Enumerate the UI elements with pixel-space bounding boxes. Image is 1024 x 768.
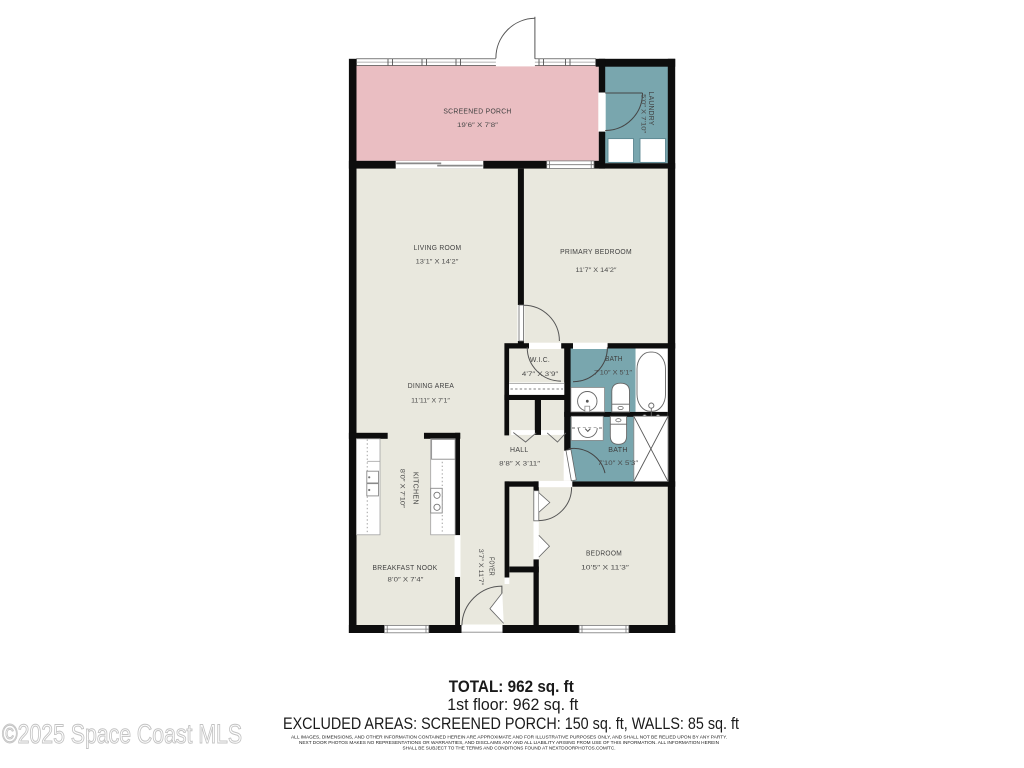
svg-text:4’7″ X 3’9″: 4’7″ X 3’9″ bbox=[522, 371, 559, 378]
svg-text:KITCHEN: KITCHEN bbox=[412, 472, 419, 505]
svg-text:TOTAL: 962 sq. ft: TOTAL: 962 sq. ft bbox=[449, 678, 574, 696]
svg-text:SHALL BE SUBJECT TO THE TERMS: SHALL BE SUBJECT TO THE TERMS AND CONDIT… bbox=[403, 746, 616, 751]
svg-text:7’10″ X 5’3″: 7’10″ X 5’3″ bbox=[598, 460, 639, 467]
svg-text:PRIMARY BEDROOM: PRIMARY BEDROOM bbox=[560, 249, 632, 256]
svg-text:LAUNDRY: LAUNDRY bbox=[647, 92, 654, 126]
svg-text:10’5″ X 11’3″: 10’5″ X 11’3″ bbox=[581, 564, 630, 571]
svg-text:EXCLUDED AREAS: SCREENED PORCH: EXCLUDED AREAS: SCREENED PORCH: 150 sq. … bbox=[283, 715, 739, 733]
svg-text:BATH: BATH bbox=[605, 356, 623, 363]
svg-text:3’7″ X 11’7″: 3’7″ X 11’7″ bbox=[477, 549, 484, 586]
svg-text:8’0″ X 7’4″: 8’0″ X 7’4″ bbox=[388, 576, 425, 583]
svg-text:ALL IMAGES, DIMENSIONS, AND OT: ALL IMAGES, DIMENSIONS, AND OTHER INFORM… bbox=[291, 735, 727, 740]
svg-text:W.I.C.: W.I.C. bbox=[530, 357, 550, 364]
svg-text:DINING AREA: DINING AREA bbox=[408, 383, 454, 390]
svg-text:BATH: BATH bbox=[608, 447, 628, 454]
svg-text:19’6″ X 7’8″: 19’6″ X 7’8″ bbox=[457, 122, 499, 129]
svg-text:LIVING ROOM: LIVING ROOM bbox=[414, 245, 462, 252]
svg-text:13’1″ X 14’2″: 13’1″ X 14’2″ bbox=[416, 258, 460, 265]
svg-text:SCREENED PORCH: SCREENED PORCH bbox=[443, 109, 511, 116]
svg-text:8’0″ X 7’10″: 8’0″ X 7’10″ bbox=[398, 469, 405, 509]
svg-text:5’0″ X 7’10″: 5’0″ X 7’10″ bbox=[639, 94, 646, 134]
svg-text:11’7″ X 14’2″: 11’7″ X 14’2″ bbox=[576, 267, 618, 274]
svg-text:11’11″ X 7’1″: 11’11″ X 7’1″ bbox=[411, 397, 451, 404]
svg-text:HALL: HALL bbox=[510, 447, 529, 454]
svg-text:NEXT DOOR PHOTOS MAKES NO REPR: NEXT DOOR PHOTOS MAKES NO REPRESENTATION… bbox=[299, 740, 719, 745]
svg-text:BREAKFAST NOOK: BREAKFAST NOOK bbox=[373, 565, 438, 572]
svg-text:BEDROOM: BEDROOM bbox=[586, 551, 622, 558]
svg-text:7’10″ X 5’1″: 7’10″ X 5’1″ bbox=[594, 369, 633, 376]
svg-text:©2025 Space Coast MLS: ©2025 Space Coast MLS bbox=[2, 719, 242, 749]
svg-text:FOYER: FOYER bbox=[487, 557, 494, 576]
svg-text:8’8″ X 3’11″: 8’8″ X 3’11″ bbox=[499, 461, 541, 468]
svg-text:1st floor: 962 sq. ft: 1st floor: 962 sq. ft bbox=[447, 696, 578, 714]
